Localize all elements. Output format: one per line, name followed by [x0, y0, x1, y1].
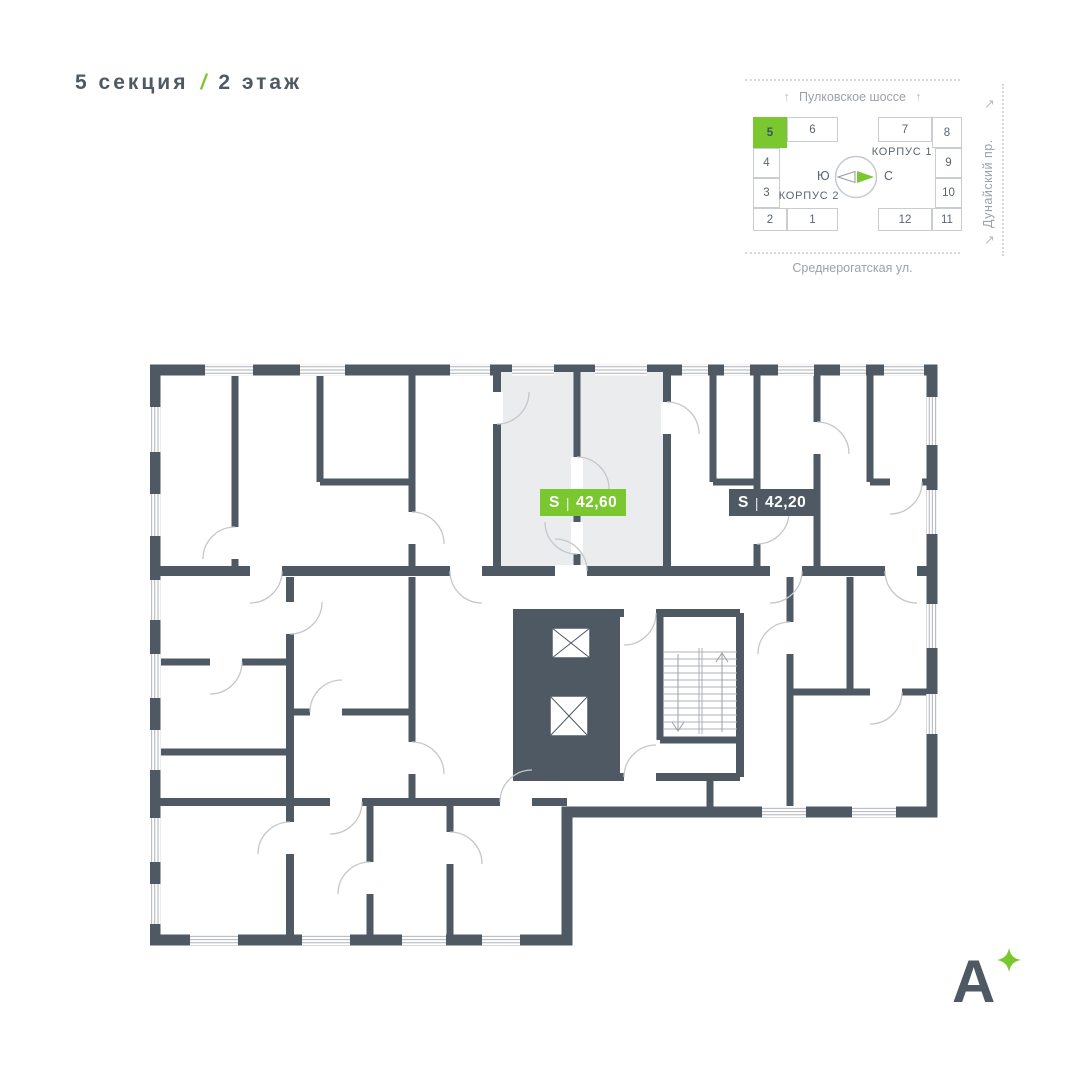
section-label: 5 секция: [75, 71, 188, 95]
compass-south-label: Ю: [817, 169, 830, 183]
badge-area-value: 42,60: [576, 494, 617, 512]
compass-icon: [834, 155, 878, 199]
section-cell-8[interactable]: 8: [932, 117, 962, 148]
street-bottom-label: Среднерогатская ул.: [792, 261, 912, 275]
street-bottom: Среднерогатская ул.: [745, 261, 960, 275]
section-cell-10[interactable]: 10: [935, 178, 962, 208]
section-cell-5[interactable]: 5: [753, 117, 787, 148]
section-cell-12[interactable]: 12: [878, 208, 932, 231]
floor-plan-drawing: [150, 362, 940, 947]
street-top-label: Пулковское шоссе: [799, 90, 906, 104]
street-top: ↑ Пулковское шоссе ↑: [745, 89, 960, 104]
diagonal-arrow-icon: ↗: [984, 232, 995, 248]
minimap-top-dotted-line: [745, 79, 960, 81]
up-arrow-icon: ↑: [784, 89, 791, 104]
apartment-badge-selected[interactable]: S | 42,60: [540, 489, 626, 516]
section-cell-2[interactable]: 2: [753, 208, 787, 231]
badge-area-label: S: [738, 494, 749, 512]
minimap-right-dotted-line: [1002, 84, 1004, 256]
diagonal-arrow-icon: ↗: [984, 96, 995, 112]
section-cell-6[interactable]: 6: [787, 117, 838, 142]
minimap-bottom-dotted-line: [745, 252, 960, 254]
floor-plan: [150, 362, 940, 947]
sparkle-icon: [997, 948, 1021, 972]
brand-logo: А: [950, 948, 1028, 1028]
section-cell-1[interactable]: 1: [787, 208, 838, 231]
section-cell-11[interactable]: 11: [932, 208, 962, 231]
elevator-icon: [552, 628, 590, 658]
up-arrow-icon: ↑: [915, 89, 922, 104]
badge-separator: |: [755, 495, 759, 511]
apartment-badge-other[interactable]: S | 42,20: [729, 489, 815, 516]
street-right-label: Дунайский пр.: [981, 122, 995, 228]
section-cell-7[interactable]: 7: [878, 117, 932, 142]
building-2-label: КОРПУС 2: [775, 190, 843, 202]
elevator-icon: [550, 696, 588, 736]
compass-north-label: С: [884, 169, 893, 183]
badge-area-label: S: [549, 494, 560, 512]
floor-label: 2 этаж: [218, 71, 302, 95]
page-title: 5 секция / 2 этаж: [75, 71, 302, 95]
logo-letter: А: [952, 950, 995, 1014]
badge-area-value: 42,20: [765, 494, 806, 512]
title-divider: /: [200, 71, 206, 95]
badge-separator: |: [566, 495, 570, 511]
section-cell-4[interactable]: 4: [753, 148, 780, 178]
